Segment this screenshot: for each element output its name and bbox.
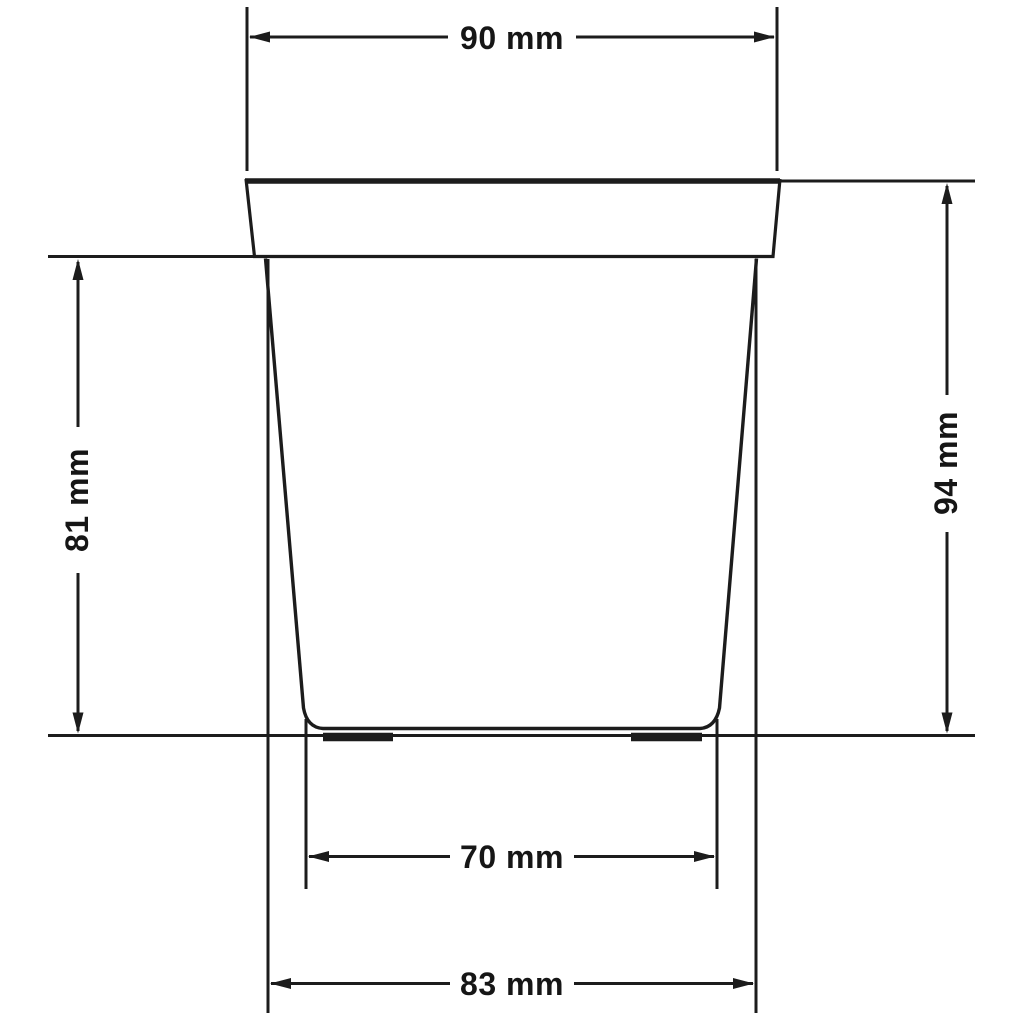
drawing-canvas: 90 mm 81 mm 94 mm 70 mm 83 mm — [0, 0, 1024, 1024]
arrowhead-83mm-left — [270, 978, 291, 989]
arrowhead-83mm-right — [733, 978, 754, 989]
arrowhead-70mm-right — [694, 851, 715, 862]
arrowhead-90mm-right — [754, 32, 775, 43]
dim-label-body-height: 81 mm — [59, 448, 95, 552]
pot-rim-outline — [246, 179, 780, 257]
arrowhead-81mm-top — [73, 259, 84, 280]
drawing-group: 90 mm 81 mm 94 mm 70 mm 83 mm — [48, 7, 975, 1013]
pot-outline — [245, 179, 780, 737]
pot-body-outline — [266, 259, 757, 729]
dim-label-base-width: 70 mm — [460, 839, 564, 875]
dimension-labels: 90 mm 81 mm 94 mm 70 mm 83 mm — [59, 20, 964, 1002]
arrowhead-94mm-bottom — [942, 713, 953, 734]
arrowhead-70mm-left — [308, 851, 329, 862]
pot-dimension-drawing: 90 mm 81 mm 94 mm 70 mm 83 mm — [0, 0, 1024, 1024]
dim-label-lower-width: 83 mm — [460, 966, 564, 1002]
arrowhead-90mm-left — [249, 32, 270, 43]
dim-label-top-width: 90 mm — [460, 20, 564, 56]
arrowhead-94mm-top — [942, 183, 953, 204]
dim-label-total-height: 94 mm — [928, 411, 964, 515]
arrowhead-81mm-bottom — [73, 713, 84, 734]
